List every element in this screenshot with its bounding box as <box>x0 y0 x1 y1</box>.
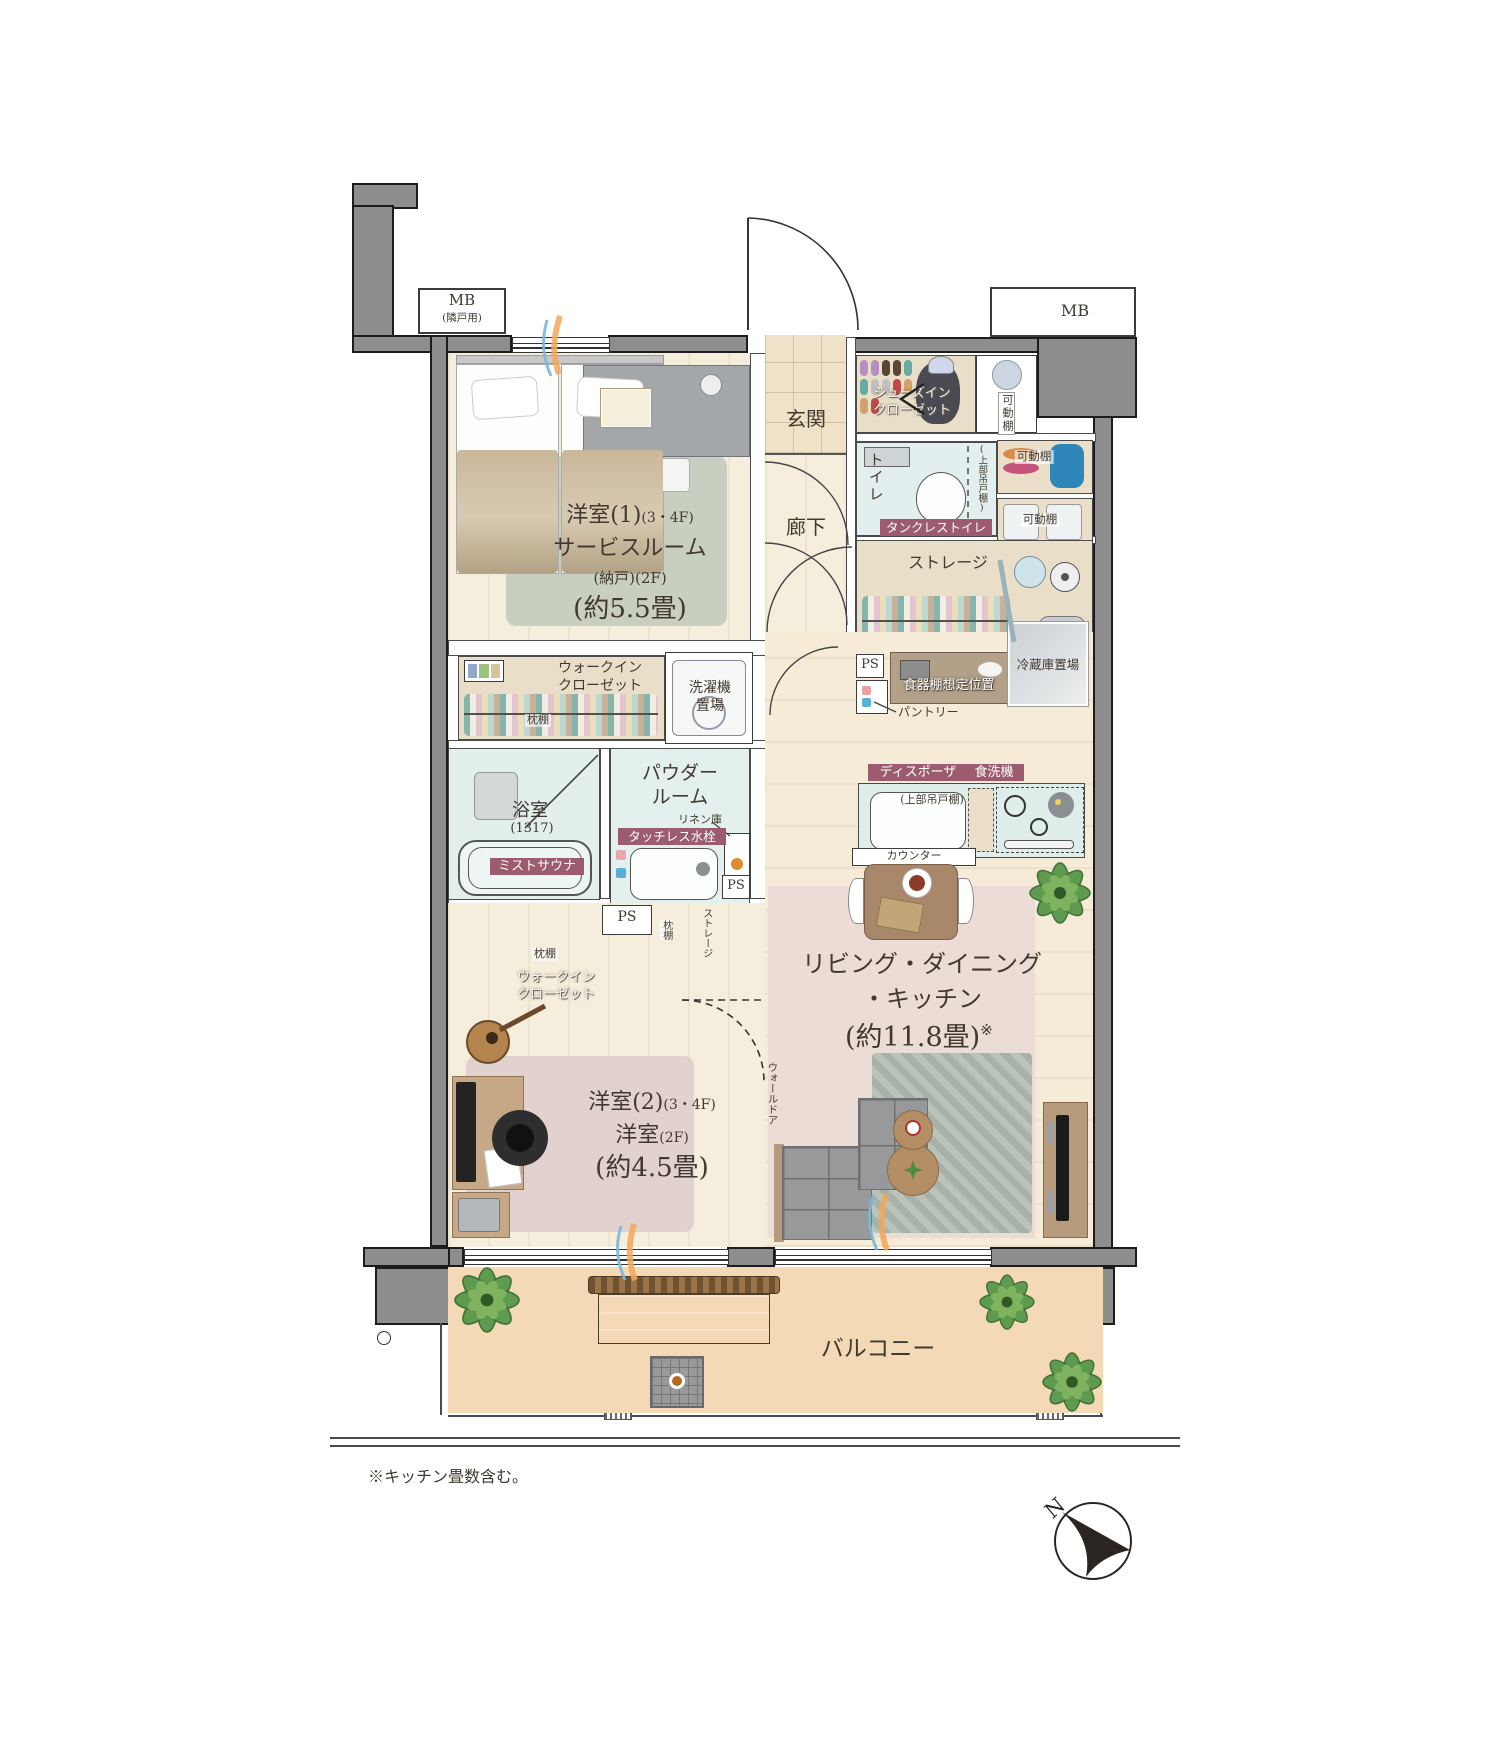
ps-pantry-label: PS <box>861 657 879 672</box>
sic-shelf-label: 可動棚 <box>998 392 1015 435</box>
bedroom2-label-2: 洋室(2F) <box>615 1123 689 1149</box>
bath-label: 浴室 <box>512 800 548 821</box>
tankless-toilet-badge: タンクレストイレ <box>880 519 992 536</box>
bedroom1-size-label: (約5.5畳) <box>573 594 687 625</box>
bedroom1-label-2: サービスルーム <box>553 536 706 562</box>
floor-plan: MB (隣戸用) MB 玄関 廊下 シューズイン クローゼット 可動棚 トイレ … <box>0 0 1500 1760</box>
counter-label: カウンター <box>887 850 942 863</box>
balcony-label: バルコニー <box>821 1336 936 1363</box>
wic1-label-1: ウォークイン <box>558 660 642 677</box>
corridor-label: 廊下 <box>786 516 826 540</box>
wic2-shelf-label: 枕棚 <box>532 948 558 961</box>
bedroom1-label-1: 洋室(1)(3・4F) <box>566 503 694 529</box>
ldk-label-1: リビング・ダイニング <box>802 950 1042 978</box>
wic2-label-1: ウォークイン <box>517 970 595 985</box>
mb-right-label: MB <box>1061 302 1089 321</box>
powder-label-2: ルーム <box>652 786 708 808</box>
cupboard-label: 食器棚想定位置 <box>903 678 994 693</box>
mb-left-label: MB <box>449 292 475 310</box>
mini-storage-shelf-label: 枕棚 <box>660 920 672 940</box>
bedroom2-label-1: 洋室(2)(3・4F) <box>588 1090 716 1116</box>
pantry-label: パントリー <box>898 705 959 719</box>
toilet-label: トイレ <box>866 452 884 503</box>
powder-label-1: パウダー <box>642 762 718 784</box>
mb-left-sublabel: (隣戸用) <box>442 312 482 324</box>
wic1-shelf-label: 枕棚 <box>525 714 551 727</box>
movable-shelf-3-label: 可動棚 <box>1021 513 1060 527</box>
kitchen-note: ※キッチン畳数含む。 <box>368 1468 528 1487</box>
kitchen-upper-cabinet-label: (上部吊戸棚) <box>900 794 964 807</box>
dishwasher-badge: 食洗機 <box>964 764 1024 781</box>
ldk-size-label: (約11.8畳)※ <box>845 1022 993 1054</box>
laundry-label-2: 置場 <box>696 698 724 715</box>
genkan-label: 玄関 <box>786 408 826 432</box>
mini-storage-label: ストレージ <box>700 908 712 958</box>
disposer-badge: ディスポーザ <box>868 764 968 781</box>
linen-label: リネン庫 <box>678 814 722 827</box>
wall-door-label: ウォールドア <box>766 1062 778 1125</box>
fridge-label: 冷蔵庫置場 <box>1017 658 1080 673</box>
mist-sauna-badge: ミストサウナ <box>490 858 584 875</box>
overlay-graphics <box>0 0 1500 1760</box>
wic1-label-2: クローゼット <box>558 678 642 695</box>
toilet-upper-cabinet-label: (上部吊戸棚) <box>976 444 987 514</box>
ldk-label-2: ・キッチン <box>862 985 982 1013</box>
ps-mid-label: PS <box>727 878 745 893</box>
storage-room-label: ストレージ <box>908 554 988 573</box>
movable-shelf-2-label: 可動棚 <box>1015 450 1054 464</box>
touchless-badge: タッチレス水栓 <box>618 828 726 845</box>
bedroom1-label-3: (納戸)(2F) <box>593 570 666 588</box>
bedroom2-size-label: (約4.5畳) <box>595 1153 709 1184</box>
ps-left-label: PS <box>617 909 636 926</box>
bath-size-label: (1317) <box>510 821 553 836</box>
wic2-label-2: クローゼット <box>517 987 595 1002</box>
laundry-label-1: 洗濯機 <box>689 680 731 697</box>
